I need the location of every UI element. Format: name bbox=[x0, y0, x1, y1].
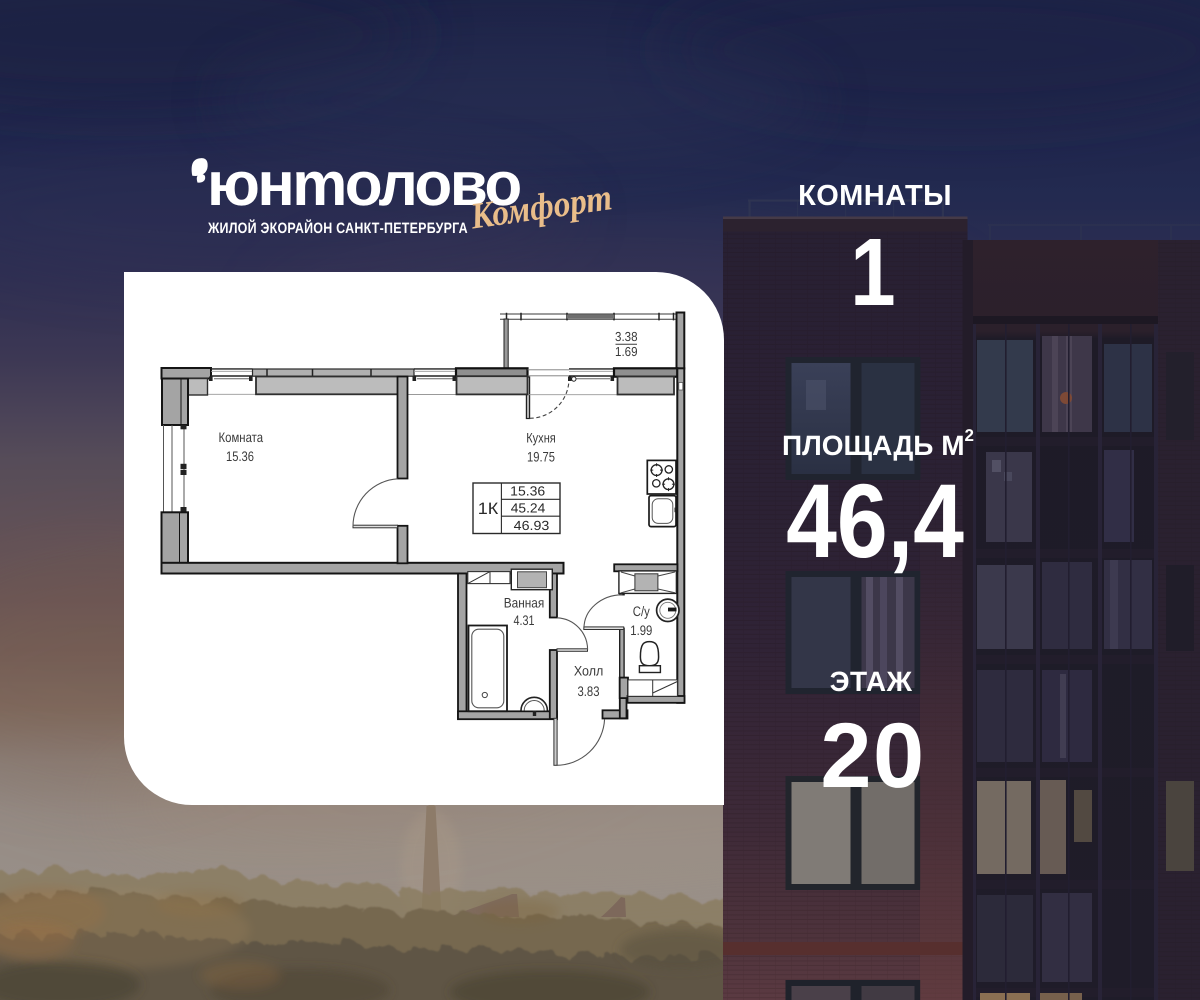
svg-text:3.83: 3.83 bbox=[578, 684, 600, 699]
svg-text:1.99: 1.99 bbox=[630, 623, 652, 638]
svg-text:С/у: С/у bbox=[633, 604, 650, 619]
svg-text:Холл: Холл bbox=[574, 663, 604, 678]
svg-text:45.24: 45.24 bbox=[511, 501, 546, 516]
svg-text:Ванная: Ванная bbox=[504, 596, 545, 611]
svg-text:19.75: 19.75 bbox=[527, 449, 555, 464]
svg-text:1.69: 1.69 bbox=[615, 344, 638, 359]
svg-text:1К: 1К bbox=[478, 500, 499, 518]
svg-text:46.93: 46.93 bbox=[514, 518, 550, 533]
svg-text:15.36: 15.36 bbox=[510, 484, 545, 499]
svg-text:3.38: 3.38 bbox=[615, 329, 638, 344]
svg-text:Комната: Комната bbox=[219, 430, 264, 445]
svg-text:Кухня: Кухня bbox=[526, 430, 556, 445]
svg-text:15.36: 15.36 bbox=[226, 449, 254, 464]
svg-text:4.31: 4.31 bbox=[514, 613, 535, 628]
